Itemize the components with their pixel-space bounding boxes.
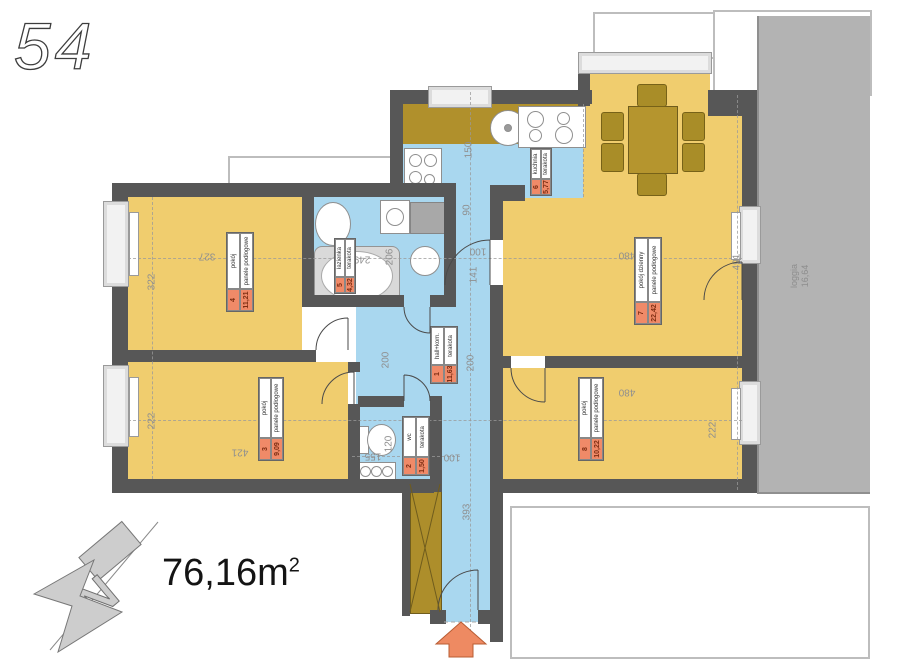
dimension-327: 327 bbox=[199, 251, 216, 262]
dimension-200: 200 bbox=[466, 355, 477, 372]
cabinet-icon bbox=[410, 202, 446, 234]
wall bbox=[302, 195, 314, 307]
dimension-206: 206 bbox=[385, 249, 396, 266]
room-label-3: 3pokój 9,09panele podłogowe bbox=[258, 377, 284, 461]
chair-icon bbox=[637, 84, 667, 107]
stove-icon bbox=[518, 106, 586, 148]
wall bbox=[408, 479, 434, 493]
dimension-100: 100 bbox=[470, 246, 487, 257]
wall bbox=[490, 285, 503, 480]
chair-icon bbox=[637, 173, 667, 196]
radiator-icon bbox=[129, 377, 139, 437]
room-label-5: 5łazienka 4,32terakota bbox=[334, 238, 356, 294]
wall bbox=[348, 404, 360, 480]
chair-icon bbox=[682, 143, 705, 172]
dimension-393: 393 bbox=[462, 504, 473, 521]
room-label-7: 7pokój dzienny 22,42panele podłogowe bbox=[634, 237, 662, 325]
wc-vanity-icon bbox=[356, 462, 396, 480]
sink-tap-icon bbox=[504, 124, 512, 132]
door-room4 bbox=[316, 318, 348, 350]
dining-table-icon bbox=[628, 106, 678, 174]
wardrobe-icon bbox=[410, 484, 442, 614]
dimension-100-bottom: 100 bbox=[444, 452, 461, 463]
wall bbox=[503, 356, 511, 368]
entry-corridor-floor bbox=[442, 480, 490, 622]
dimension-155: 155 bbox=[365, 451, 382, 462]
washing-machine-icon bbox=[380, 200, 410, 234]
chair-icon bbox=[682, 112, 705, 141]
dimension-421: 421 bbox=[232, 447, 249, 458]
wall bbox=[358, 396, 404, 407]
window bbox=[739, 381, 761, 445]
wall bbox=[430, 610, 446, 624]
window bbox=[103, 201, 129, 287]
room-label-4: 4pokój 11,21panele podłogowe bbox=[226, 232, 254, 312]
wall bbox=[348, 362, 360, 372]
dimension-249: 249 bbox=[354, 254, 371, 265]
wall bbox=[478, 610, 493, 624]
plan-number: 54 bbox=[14, 8, 95, 84]
dimension-222-left: 222 bbox=[147, 413, 158, 430]
room-8-floor bbox=[503, 368, 742, 479]
loggia-label: loggia 16,64 bbox=[789, 264, 811, 288]
room-label-6: 6kuchnia 5,77terakota bbox=[530, 148, 552, 196]
dimension-120: 120 bbox=[384, 436, 395, 453]
wall bbox=[545, 356, 742, 368]
dimension-480-top: 480 bbox=[619, 250, 636, 261]
wall bbox=[390, 90, 403, 197]
wall bbox=[302, 295, 404, 307]
entry-arrow-icon bbox=[436, 622, 486, 657]
room-label-8: 8pokój 10,22panele podłogowe bbox=[578, 377, 604, 461]
radiator-icon bbox=[731, 388, 741, 440]
room-label-2: 2wc 1,50terakota bbox=[402, 416, 430, 476]
window bbox=[428, 86, 492, 108]
floor-plan: 322 327 222 421 249 206 200 200 150 90 1… bbox=[0, 0, 900, 659]
radiator-icon bbox=[129, 212, 139, 276]
chair-icon bbox=[601, 143, 624, 172]
window bbox=[103, 365, 129, 447]
north-arrow-icon: N bbox=[34, 522, 158, 652]
wall bbox=[503, 479, 757, 493]
loggia-area bbox=[757, 16, 870, 494]
wall bbox=[444, 195, 456, 307]
dimension-line bbox=[583, 104, 584, 197]
room-7-floor bbox=[503, 197, 742, 356]
wall bbox=[112, 479, 408, 493]
room-label-1: 1hall+kom. 11,63terakota bbox=[430, 326, 458, 384]
wall bbox=[490, 197, 503, 240]
total-area: 76,16m2 bbox=[162, 552, 300, 595]
dimension-222-right: 222 bbox=[708, 422, 719, 439]
north-letter: N bbox=[65, 564, 129, 630]
dimension-480-bottom: 480 bbox=[619, 387, 636, 398]
dimension-322: 322 bbox=[147, 274, 158, 291]
dimension-491: 491 bbox=[732, 254, 743, 271]
wall bbox=[402, 484, 410, 616]
dimension-150: 150 bbox=[464, 142, 475, 159]
wall bbox=[128, 350, 316, 362]
chair-icon bbox=[601, 112, 624, 141]
dimension-line bbox=[737, 95, 738, 490]
context-outline bbox=[510, 506, 870, 659]
wall bbox=[430, 396, 442, 492]
window bbox=[578, 52, 712, 74]
dimension-200: 200 bbox=[381, 352, 392, 369]
dimension-line bbox=[128, 420, 742, 421]
dimension-141: 141 bbox=[469, 267, 480, 284]
dimension-90: 90 bbox=[462, 204, 473, 215]
washbasin-icon bbox=[410, 246, 440, 276]
wall bbox=[112, 183, 456, 197]
dimension-line bbox=[152, 197, 153, 479]
